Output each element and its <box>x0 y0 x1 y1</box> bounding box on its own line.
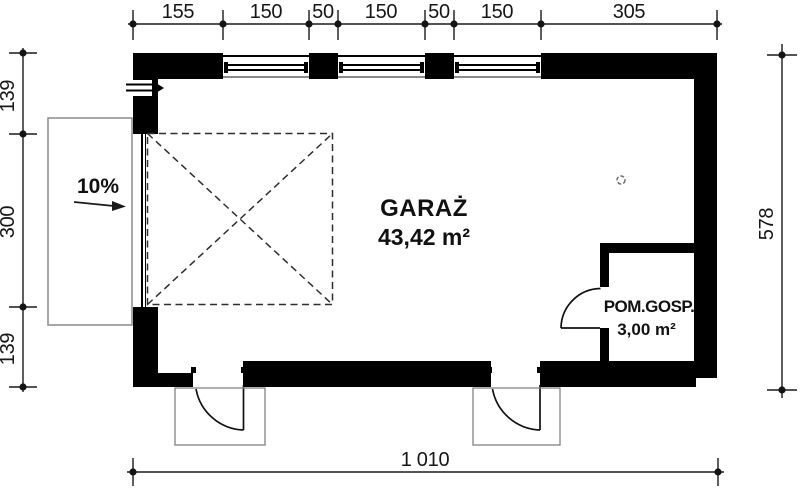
dim-top-label-3: 50 <box>293 0 353 24</box>
dim-top-label-5: 50 <box>409 0 469 24</box>
driveway-slope-label: 10% <box>68 175 128 199</box>
dim-right-label: 578 <box>755 194 779 254</box>
utility-door-swing <box>561 289 601 329</box>
garage-room-area: 43,42 m² <box>324 224 524 251</box>
garage-room-name: GARAŻ <box>324 195 524 223</box>
door-1-swing <box>196 385 244 430</box>
parking-space-dashed-box <box>148 134 333 305</box>
utility-room-name: POM.GOSP. <box>599 297 699 317</box>
utility-room-area: 3,00 m² <box>599 320 694 340</box>
dim-top-label-4: 150 <box>351 0 411 24</box>
dim-top-label-2: 150 <box>236 0 296 24</box>
floor-drain-icon <box>617 176 625 184</box>
dim-top-label-7: 305 <box>599 0 659 24</box>
dim-bottom-label: 1 010 <box>375 448 475 472</box>
dim-left-label-1: 139 <box>0 66 20 126</box>
dim-left-label-2: 300 <box>0 192 20 252</box>
dim-left-label-3: 139 <box>0 319 20 379</box>
entrance-arrow-icon <box>126 80 164 96</box>
door-1-landing <box>175 388 265 445</box>
dim-top-label-6: 150 <box>467 0 527 24</box>
floor-plan-canvas: 155 150 50 150 50 150 305 139 300 139 57… <box>0 0 800 489</box>
door-2-swing <box>493 385 541 430</box>
door-2-landing <box>473 388 560 445</box>
dim-top-label-1: 155 <box>148 0 208 24</box>
slope-arrow-icon <box>74 201 126 211</box>
driveway-outline <box>48 118 132 325</box>
